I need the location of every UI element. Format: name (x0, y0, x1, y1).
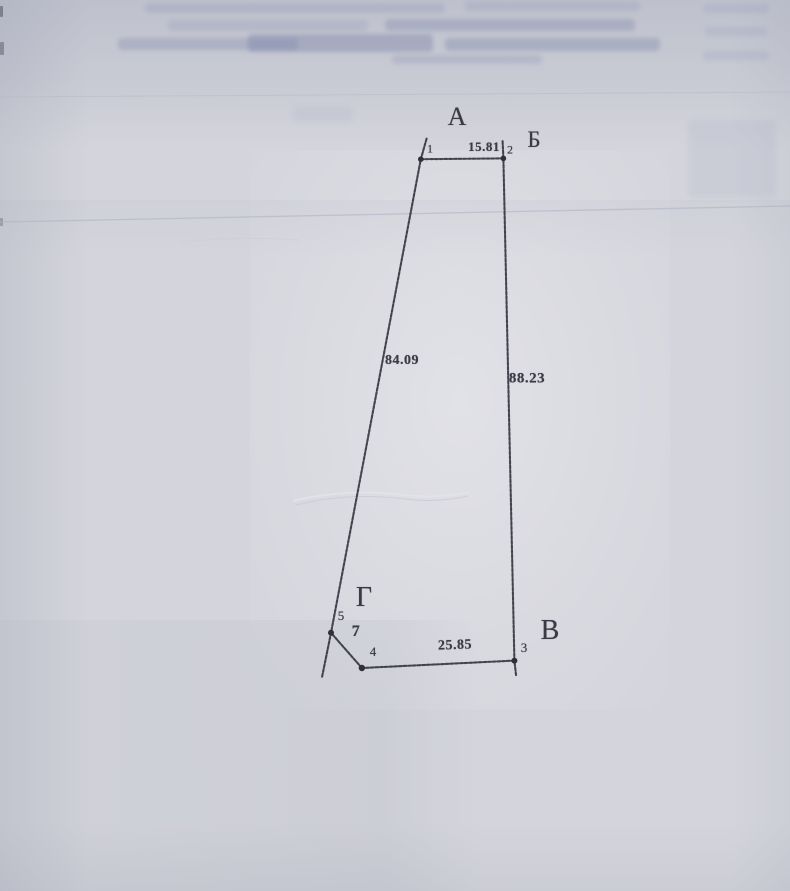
corner-label-b: Б (527, 127, 540, 153)
paper-crease (180, 238, 300, 242)
point-number-1: 1 (427, 142, 433, 157)
corner-label-g: Г (356, 582, 372, 614)
point-number-2: 2 (507, 143, 513, 158)
boundary-east-side-2-3 (503, 141, 517, 676)
point-number-3: 3 (521, 640, 528, 656)
side-length-2-3: 88.23 (509, 371, 545, 388)
survey-point-5 (328, 630, 334, 636)
boundary-west-side-5-1 (322, 139, 427, 679)
point-number-4: 4 (370, 644, 377, 660)
faint-rule-line (0, 206, 790, 222)
survey-point-4 (359, 665, 365, 671)
survey-point-3 (511, 658, 517, 664)
boundary-south-side-3-4 (362, 661, 515, 668)
parcel-plan-drawing (0, 0, 790, 891)
survey-point-1 (418, 156, 424, 162)
side-length-4-5: 7 (352, 623, 361, 641)
corner-label-a: А (448, 102, 467, 132)
boundary-north-side-1-2 (421, 158, 504, 159)
corner-label-v: В (541, 615, 560, 647)
faint-rule-line (0, 92, 790, 97)
survey-point-2 (501, 156, 507, 162)
point-number-5: 5 (338, 608, 345, 624)
paper-crease (296, 496, 468, 505)
side-length-3-4: 25.85 (438, 637, 473, 654)
side-length-5-1: 84.09 (385, 353, 419, 369)
side-length-1-2: 15.81 (468, 139, 500, 155)
photographed-document-page: А Б В Г 1 2 3 4 5 15.81 88.23 25.85 7 84… (0, 0, 790, 891)
